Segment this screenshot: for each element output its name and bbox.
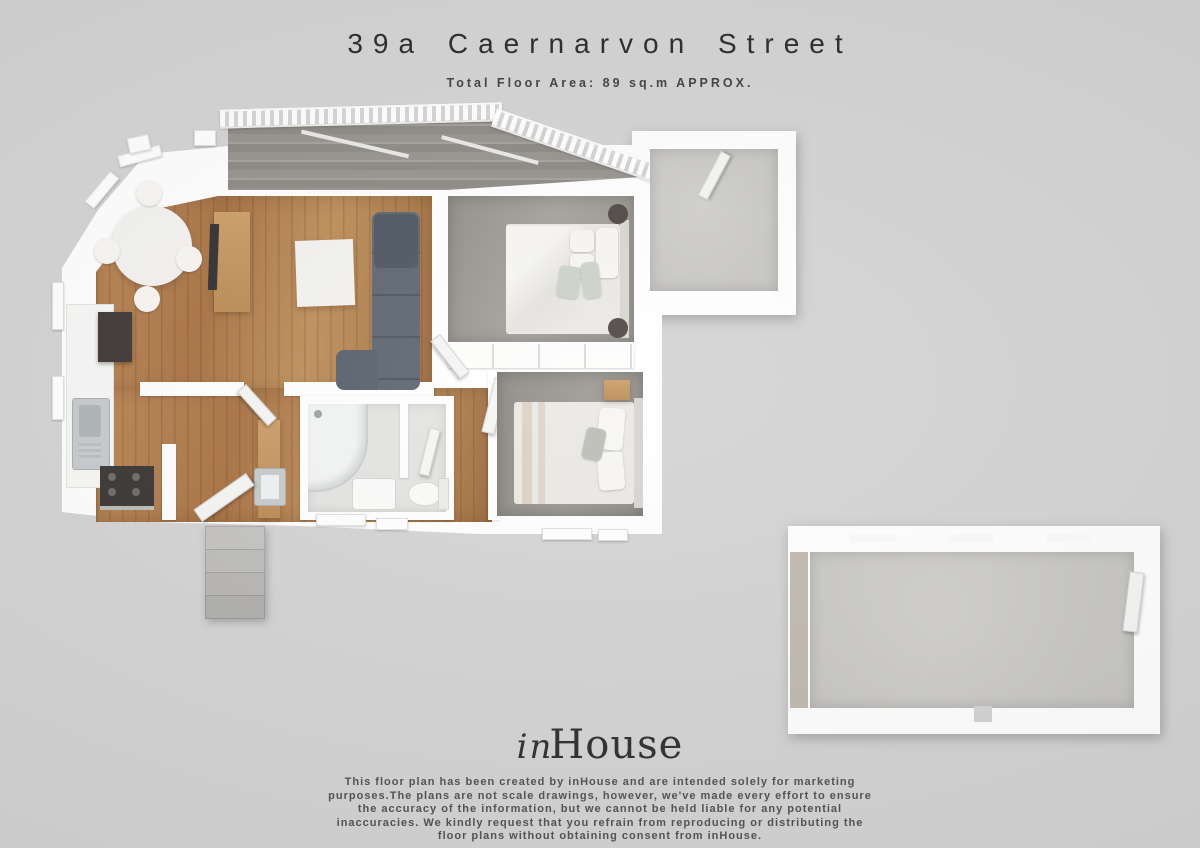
step (205, 572, 265, 596)
wc-partition (400, 404, 408, 478)
dining-chair (134, 286, 160, 312)
kitchen-tall-unit (98, 312, 132, 362)
interior-wall (162, 444, 176, 520)
step (205, 526, 265, 550)
hob-burner (132, 488, 140, 496)
logo-serif-part: House (549, 722, 683, 768)
garage-door-panel (790, 552, 808, 708)
dining-table (112, 206, 192, 286)
bathroom-sink (352, 478, 396, 510)
nightstand (608, 318, 628, 338)
dining-chair (136, 180, 162, 206)
step (205, 549, 265, 573)
bed-runner (538, 402, 545, 504)
window-sill (52, 376, 64, 420)
window-sill (376, 518, 408, 530)
bedroom1-wardrobe (448, 344, 634, 368)
bed-pillow (580, 261, 602, 299)
sink-basin (79, 405, 101, 437)
garage-floor (810, 552, 1134, 708)
disclaimer-line: This floor plan has been created by inHo… (0, 776, 1200, 790)
window-sill (52, 282, 64, 330)
garage-wall-opening (974, 706, 992, 722)
hob-burner (132, 473, 140, 481)
sofa-chaise (336, 350, 378, 390)
dining-chair (94, 238, 120, 264)
tv-unit (214, 212, 250, 312)
interior-wall (140, 382, 244, 396)
sink-drainer (79, 443, 101, 461)
bed-pillow (556, 265, 582, 300)
coffee-table (295, 239, 355, 307)
nightstand (608, 204, 628, 224)
disclaimer-line: the accuracy of the information, but we … (0, 803, 1200, 817)
bed-pillow (570, 230, 594, 252)
nightstand (604, 380, 630, 400)
step (205, 595, 265, 619)
hob-burner (108, 473, 116, 481)
entrance-steps (205, 526, 263, 620)
floorplan-render (0, 0, 1200, 848)
disclaimer-line: inaccuracies. We kindly request that you… (0, 817, 1200, 831)
shower-head (314, 410, 322, 418)
floorplan-page: 39a Caernarvon Street Total Floor Area: … (0, 0, 1200, 848)
disclaimer-line: floor plans without obtaining consent fr… (0, 830, 1200, 844)
window-sill (598, 529, 628, 541)
garage-wall-highlight (850, 534, 896, 542)
dining-chair (176, 246, 202, 272)
garage-wall-highlight (1046, 534, 1092, 542)
kitchen-sink (72, 398, 110, 470)
window-sill (542, 528, 592, 540)
logo-script-part: in (517, 727, 554, 767)
window-sill (316, 514, 366, 526)
bed-pillow (596, 228, 618, 278)
hob-burner (108, 488, 116, 496)
bed-headboard (634, 398, 643, 508)
sofa-back-cushion (374, 214, 418, 268)
utility-sink (254, 468, 286, 506)
disclaimer-text: This floor plan has been created by inHo… (0, 776, 1200, 844)
bed-runner (522, 402, 532, 504)
bay-pillar-cap (194, 130, 216, 146)
inhouse-logo: inHouse (0, 722, 1200, 768)
disclaimer-line: purposes.The plans are not scale drawing… (0, 790, 1200, 804)
garage-wall-highlight (948, 534, 994, 542)
toilet (408, 482, 440, 506)
utility-sink-basin (261, 475, 279, 499)
kitchen-hob (100, 466, 154, 510)
toilet-cistern (438, 478, 449, 510)
